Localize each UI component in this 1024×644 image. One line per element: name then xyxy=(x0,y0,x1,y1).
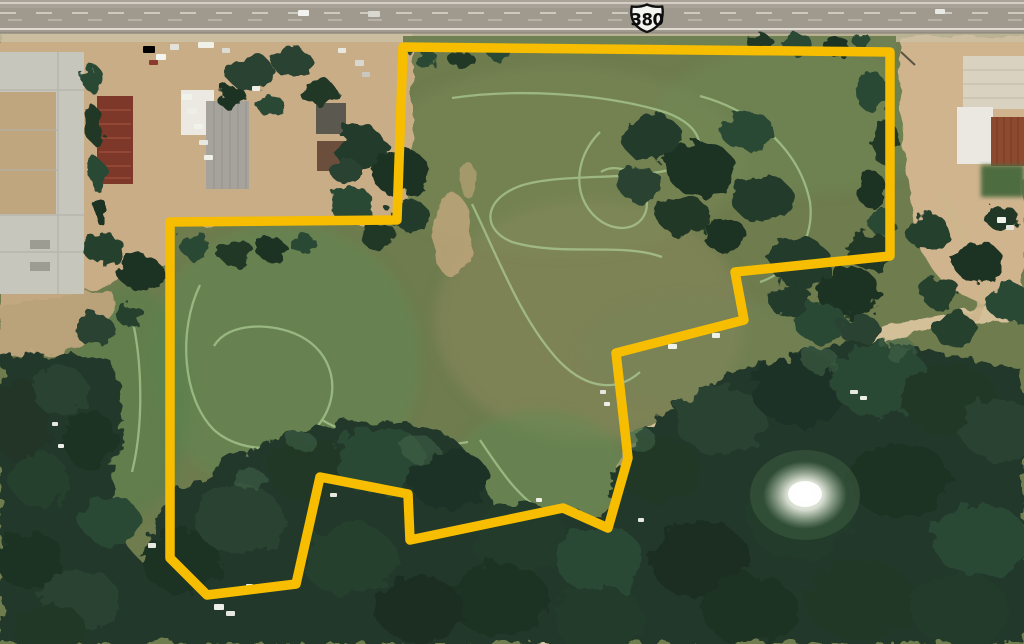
vehicle xyxy=(170,44,179,50)
eroded-patch xyxy=(432,193,472,277)
highway-380-road xyxy=(0,0,1024,42)
white-object xyxy=(712,333,720,338)
dark-shed xyxy=(316,103,346,134)
white-object xyxy=(58,444,64,448)
vehicle xyxy=(143,46,155,53)
vehicle xyxy=(149,60,158,65)
vehicle xyxy=(355,60,364,66)
vehicle xyxy=(1006,225,1014,230)
pond-glare xyxy=(750,450,860,540)
rv xyxy=(187,108,197,114)
white-object xyxy=(226,611,235,616)
lawn-strip xyxy=(981,165,1024,197)
trailer xyxy=(198,42,214,48)
vehicle xyxy=(222,48,230,53)
white-object xyxy=(668,344,677,349)
route-shield-number: 380 xyxy=(631,11,664,30)
edge-line-top xyxy=(0,2,1024,4)
white-object xyxy=(148,543,156,548)
vehicle xyxy=(935,9,945,14)
vehicle xyxy=(362,72,370,77)
white-object xyxy=(214,604,224,610)
white-object xyxy=(536,498,542,502)
eroded-streak xyxy=(460,162,476,198)
white-object xyxy=(638,518,644,522)
concrete-pad xyxy=(0,52,84,294)
rv xyxy=(194,124,203,129)
edge-line-bottom xyxy=(0,28,1024,30)
vehicle xyxy=(368,11,380,17)
rv xyxy=(182,94,192,100)
aerial-map: 380 xyxy=(0,0,1024,644)
white-object xyxy=(52,422,58,426)
vehicle xyxy=(997,217,1006,223)
white-object xyxy=(600,390,606,394)
satellite-scene: 380 xyxy=(0,0,1024,644)
gray-roof-building xyxy=(206,101,249,189)
white-object xyxy=(860,396,867,400)
rust-roof-building xyxy=(991,117,1024,166)
rv xyxy=(204,155,213,160)
us-route-380-shield: 380 xyxy=(631,5,664,33)
vehicle xyxy=(252,86,260,91)
vehicle xyxy=(156,54,166,60)
vehicle xyxy=(338,48,346,53)
white-gable-building xyxy=(957,107,993,164)
pavement-edge xyxy=(0,32,1024,34)
rv xyxy=(199,140,208,145)
vehicle xyxy=(298,10,309,16)
white-object xyxy=(850,390,858,394)
light-roof-warehouse xyxy=(963,56,1024,109)
white-object xyxy=(604,402,610,406)
white-object xyxy=(330,493,337,497)
